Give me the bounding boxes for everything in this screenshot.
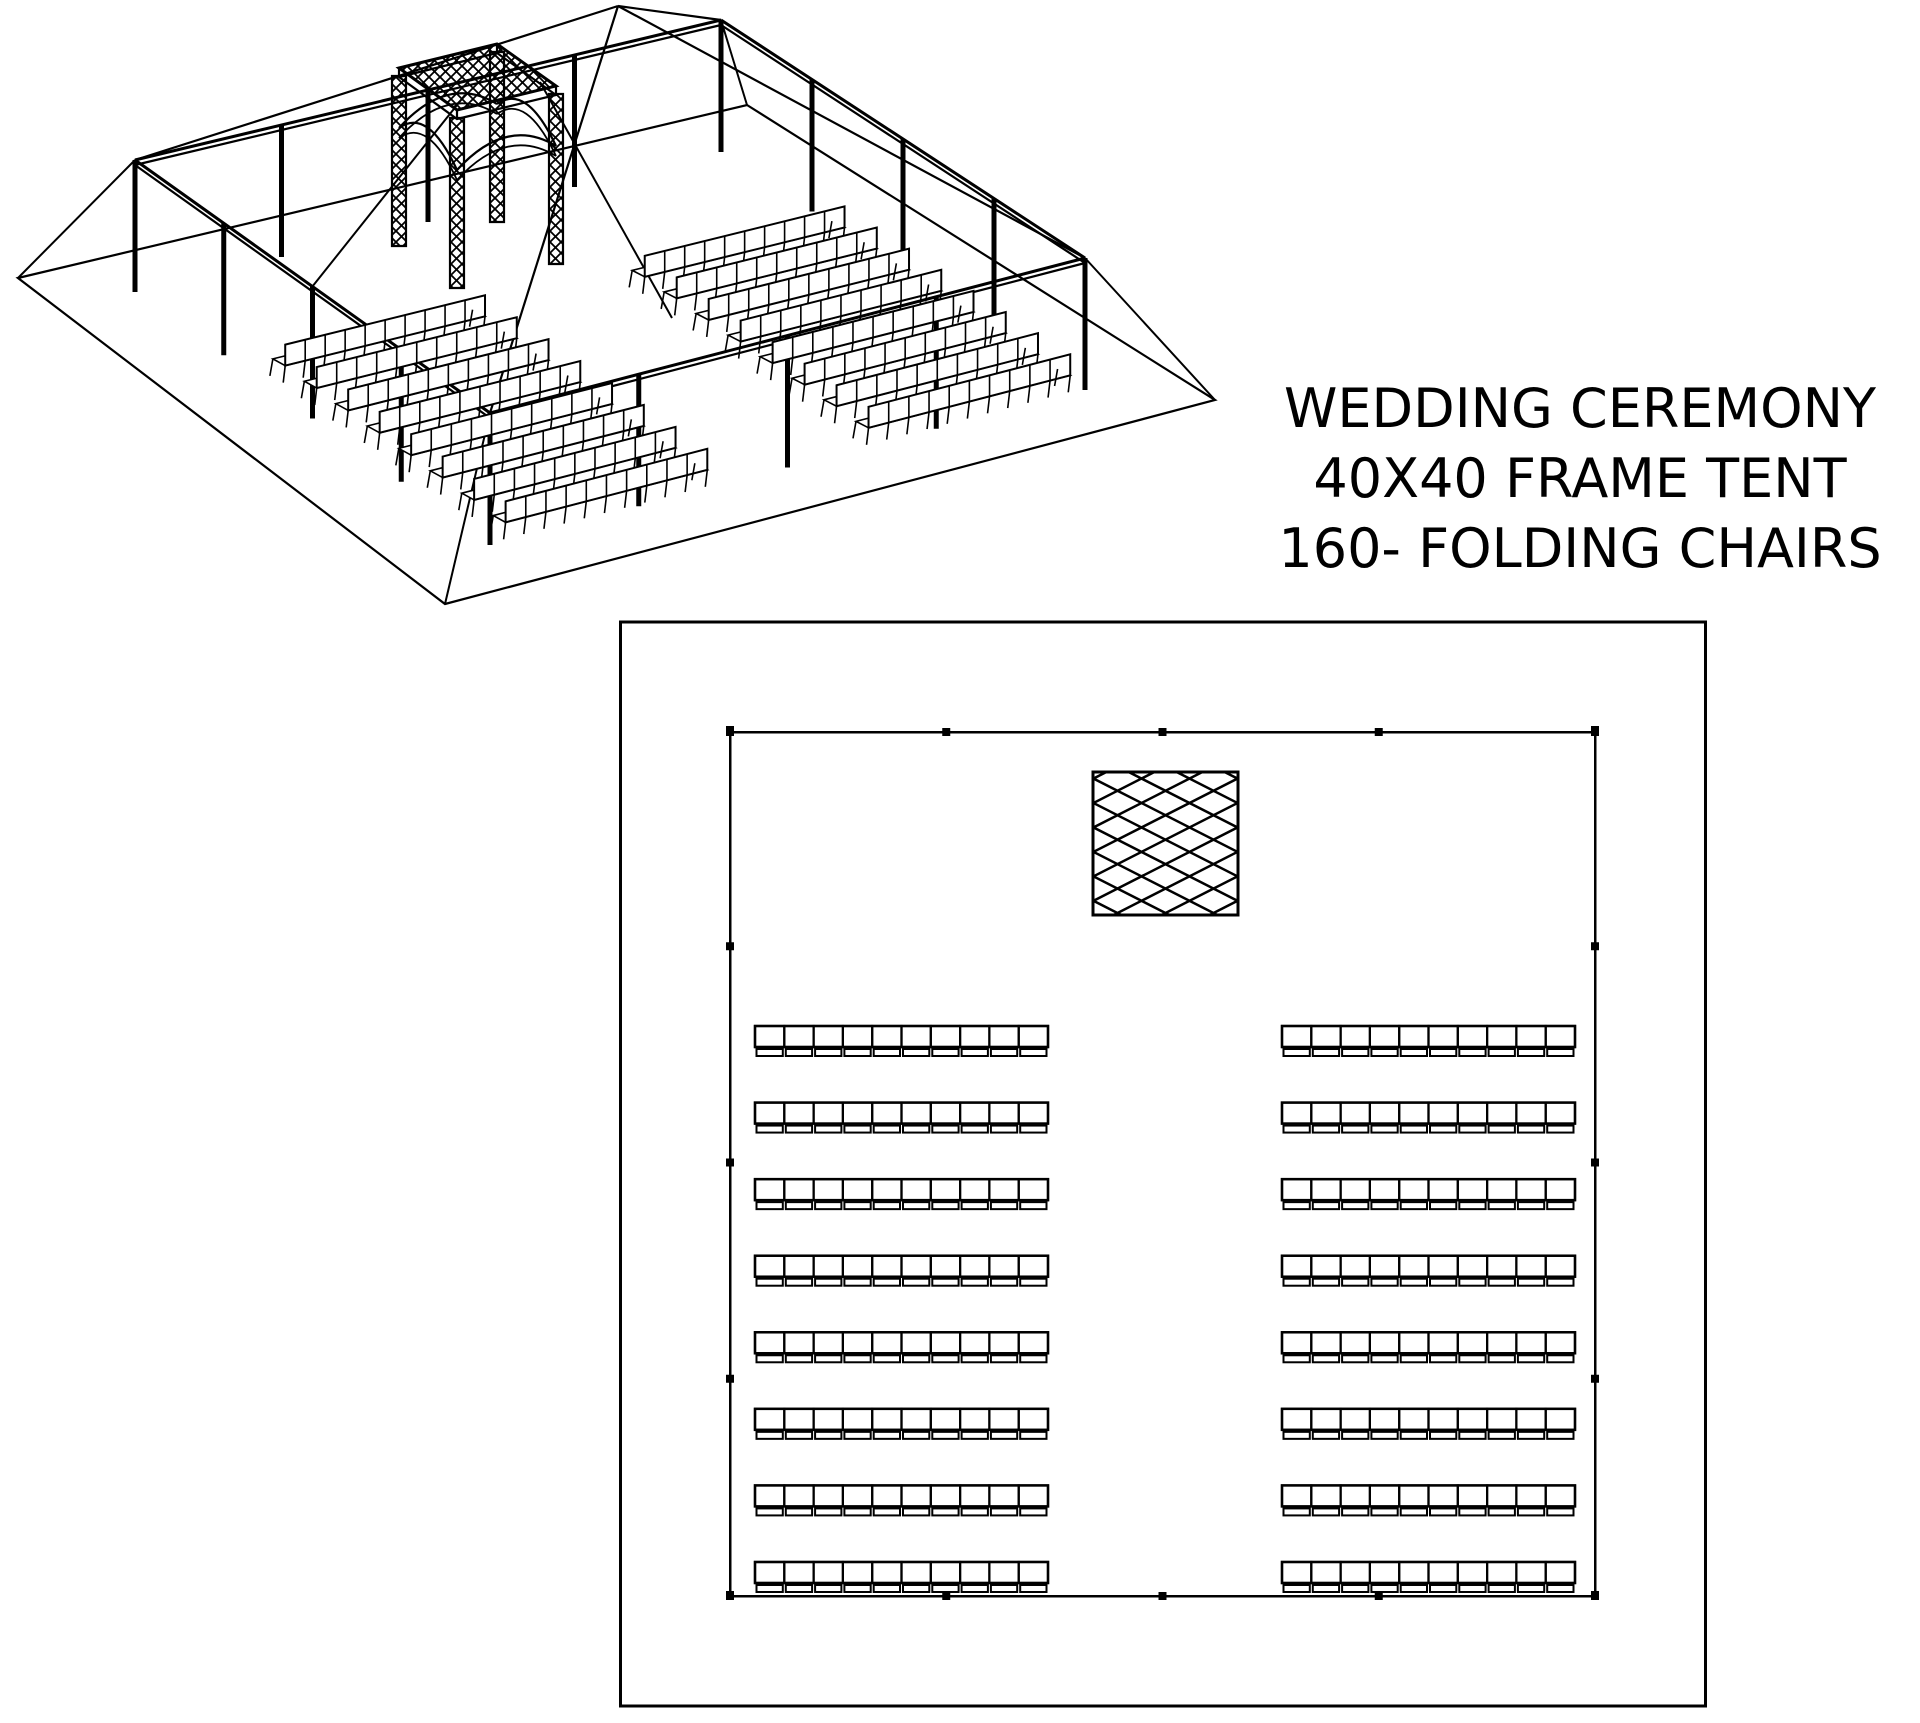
trellis-hatch	[533, 762, 1798, 925]
leg-ticks	[726, 726, 1599, 1600]
guy-ropes	[18, 20, 1215, 604]
isometric-view	[18, 6, 1215, 604]
blueprint-canvas	[0, 0, 1920, 1723]
chair-row	[755, 1179, 1048, 1209]
chair-rows-iso	[270, 206, 1070, 539]
tent-outlines	[621, 622, 1706, 1706]
chair-row	[1282, 1485, 1575, 1515]
title-line-3: 160- FOLDING CHAIRS	[1250, 514, 1910, 584]
tent-legs	[135, 20, 1085, 545]
chair-row	[1282, 1409, 1575, 1439]
roof-hips	[135, 6, 1085, 413]
chair-row	[755, 1562, 1048, 1592]
chair-rows-plan	[755, 1026, 1575, 1592]
chair-row	[1282, 1332, 1575, 1362]
chair-row	[755, 1332, 1048, 1362]
title-line-1: WEDDING CEREMONY	[1250, 374, 1910, 444]
chair-row	[755, 1103, 1048, 1133]
chair-row	[1282, 1179, 1575, 1209]
chair-row	[1282, 1256, 1575, 1286]
chair-row	[755, 1026, 1048, 1056]
arch-trellis	[392, 44, 563, 288]
chair-row	[1282, 1026, 1575, 1056]
chair-row	[755, 1256, 1048, 1286]
drawing-sheet: WEDDING CEREMONY 40X40 FRAME TENT 160- F…	[0, 0, 1920, 1723]
title-block: WEDDING CEREMONY 40X40 FRAME TENT 160- F…	[1250, 374, 1910, 584]
chair-row	[1282, 1103, 1575, 1133]
chair-row	[1282, 1562, 1575, 1592]
title-line-2: 40X40 FRAME TENT	[1250, 444, 1910, 514]
floor-plan-view	[533, 622, 1798, 1706]
chair-row	[755, 1485, 1048, 1515]
arch-trellis-marker	[533, 762, 1798, 925]
chair-row	[755, 1409, 1048, 1439]
